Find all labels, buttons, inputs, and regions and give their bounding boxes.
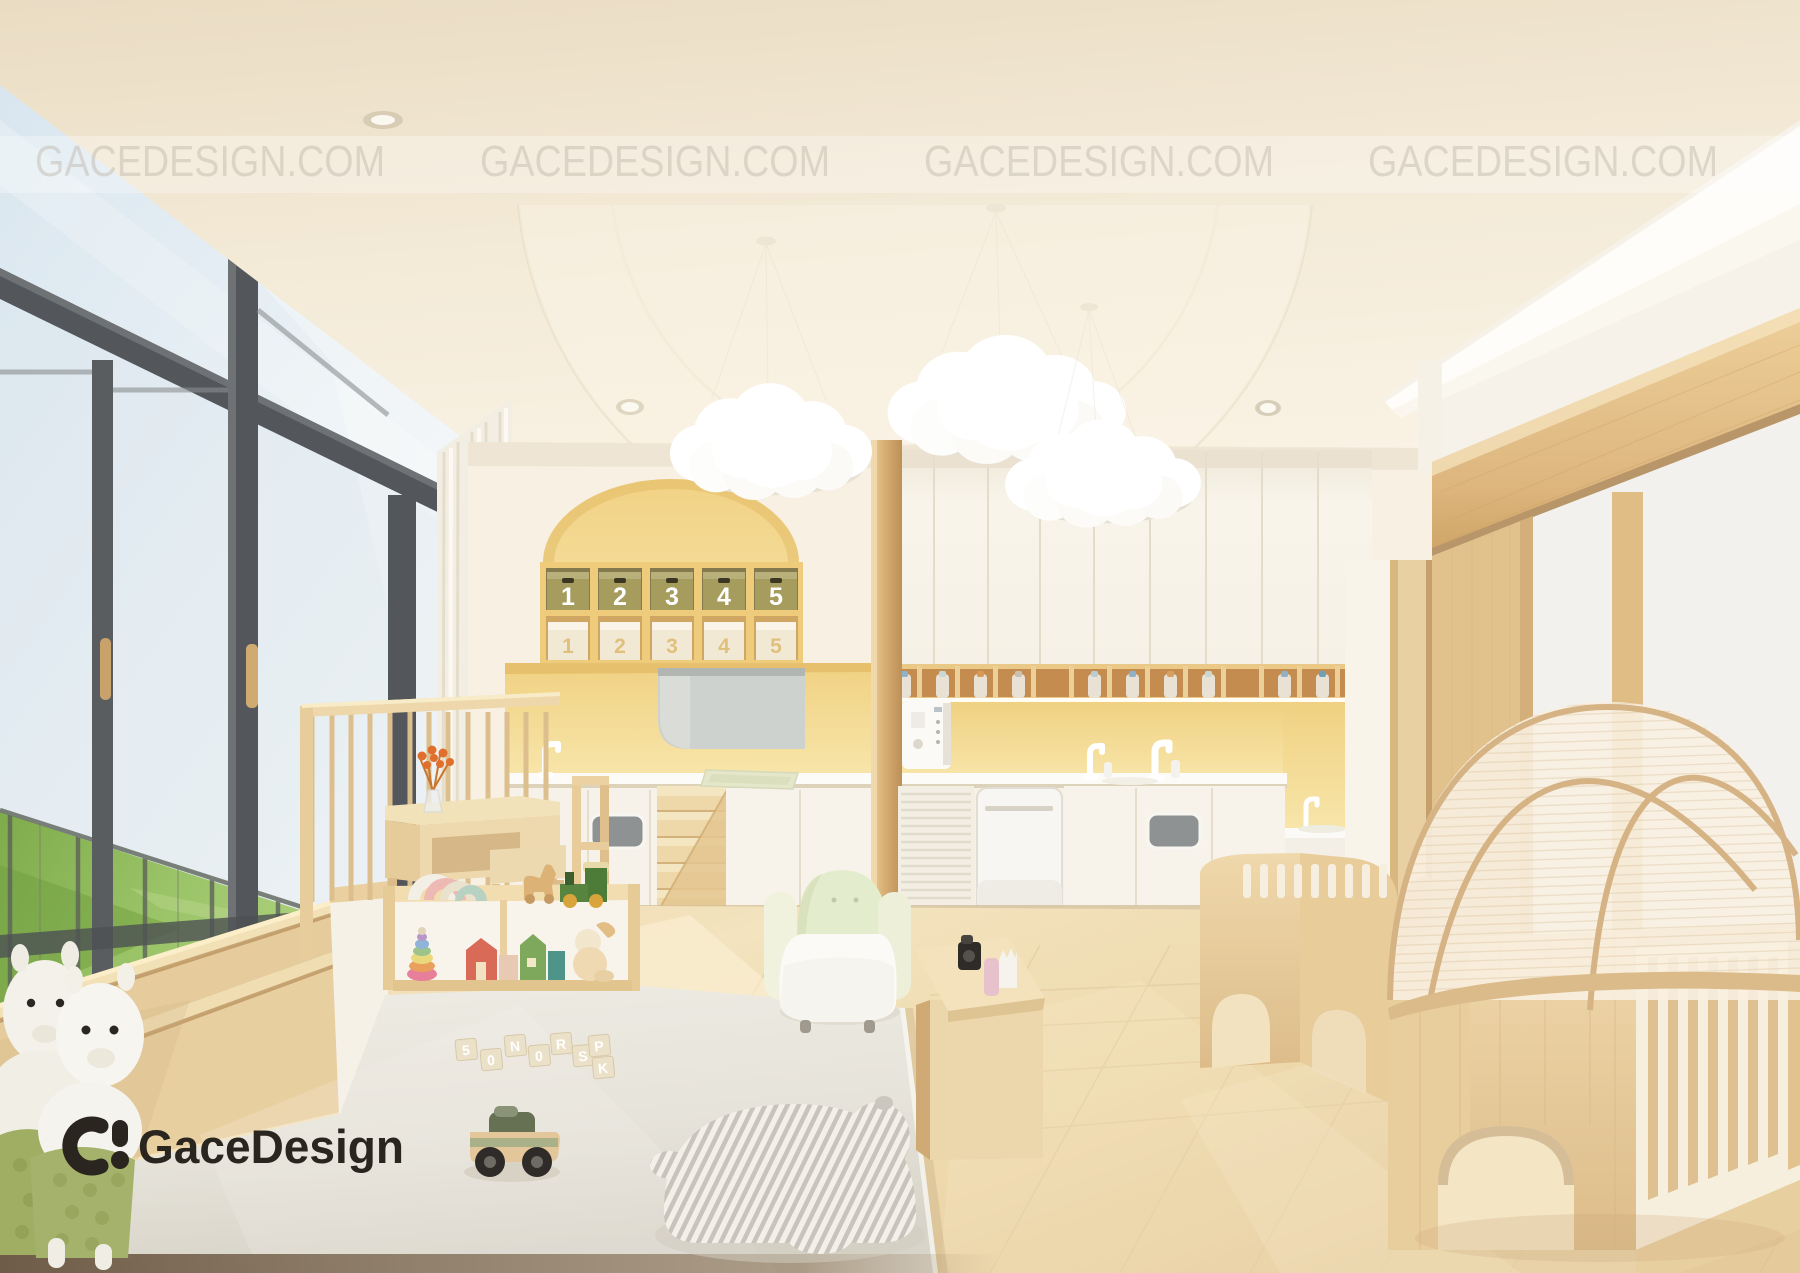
svg-text:2: 2: [614, 635, 626, 658]
svg-text:5: 5: [770, 635, 782, 658]
svg-text:0: 0: [486, 1052, 495, 1069]
svg-text:2: 2: [613, 583, 627, 611]
svg-text:GACEDESIGN.COM: GACEDESIGN.COM: [35, 137, 385, 186]
svg-text:5: 5: [461, 1042, 470, 1059]
svg-text:P: P: [594, 1038, 605, 1055]
svg-text:3: 3: [666, 635, 678, 658]
svg-text:GACEDESIGN.COM: GACEDESIGN.COM: [924, 137, 1274, 186]
svg-text:N: N: [509, 1038, 520, 1055]
svg-text:GACEDESIGN.COM: GACEDESIGN.COM: [480, 137, 830, 186]
svg-text:0: 0: [534, 1048, 543, 1065]
svg-text:R: R: [555, 1036, 566, 1053]
svg-text:1: 1: [562, 635, 574, 658]
svg-text:5: 5: [769, 583, 783, 611]
svg-text:1: 1: [561, 583, 575, 611]
svg-text:S: S: [578, 1048, 589, 1065]
svg-text:K: K: [597, 1060, 608, 1077]
svg-text:4: 4: [718, 635, 730, 658]
svg-text:4: 4: [717, 583, 731, 611]
svg-text:3: 3: [665, 583, 679, 611]
svg-text:GaceDesign: GaceDesign: [138, 1120, 404, 1173]
svg-text:GACEDESIGN.COM: GACEDESIGN.COM: [1368, 137, 1718, 186]
